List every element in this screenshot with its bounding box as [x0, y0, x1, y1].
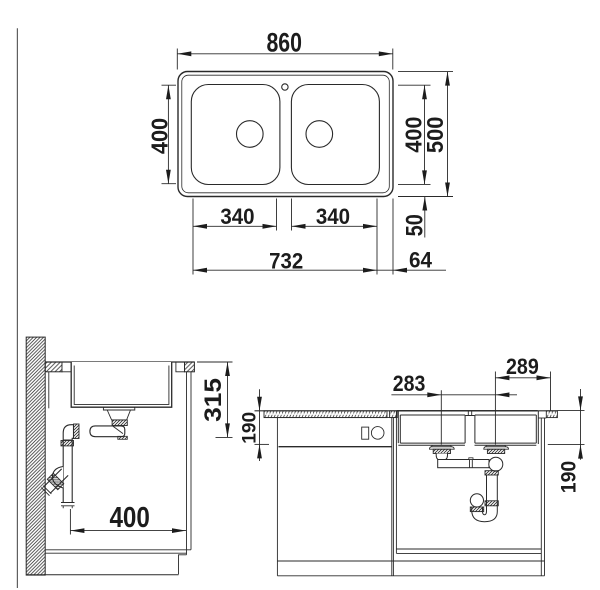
- svg-text:50: 50: [402, 214, 428, 236]
- svg-text:500: 500: [422, 117, 448, 154]
- svg-text:340: 340: [316, 204, 350, 229]
- svg-text:190: 190: [558, 461, 581, 494]
- svg-text:732: 732: [269, 249, 303, 274]
- svg-text:283: 283: [393, 371, 426, 396]
- svg-text:860: 860: [266, 28, 302, 58]
- svg-text:340: 340: [220, 204, 254, 229]
- svg-text:400: 400: [109, 502, 150, 534]
- svg-text:190: 190: [238, 412, 260, 444]
- svg-text:64: 64: [409, 247, 433, 272]
- svg-text:289: 289: [506, 354, 539, 379]
- svg-text:315: 315: [201, 378, 227, 422]
- svg-text:400: 400: [147, 118, 173, 154]
